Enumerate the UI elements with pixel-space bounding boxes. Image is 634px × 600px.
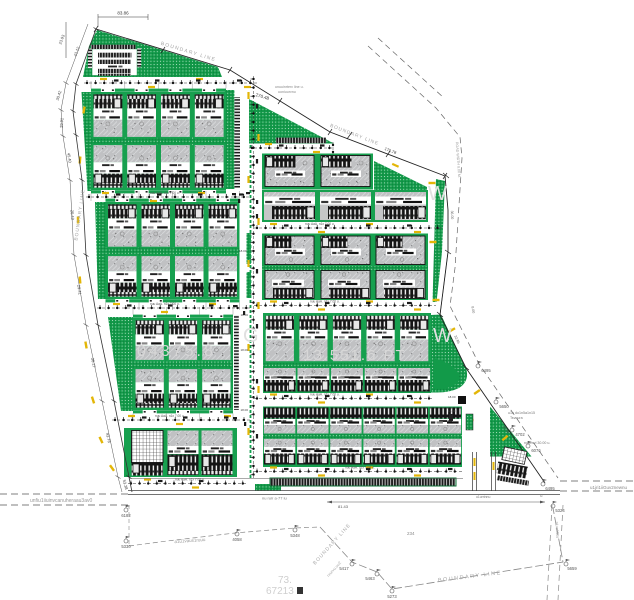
svg-text:18.00: 18.00 — [239, 249, 247, 253]
svg-text:5650: 5650 — [499, 404, 509, 409]
svg-text:6076: 6076 — [531, 448, 541, 453]
svg-text:nuuvnvi 30.00 u.: nuuvnvi 30.00 u. — [524, 441, 550, 445]
svg-text:nuu AaA. n1x 7.00 u.: nuu AaA. n1x 7.00 u. — [175, 478, 205, 482]
svg-text:04375.8: 04375.8 — [137, 343, 216, 360]
svg-text:6495: 6495 — [545, 486, 555, 491]
svg-text:nuu AaA. n1x 7.00 u.: nuu AaA. n1x 7.00 u. — [305, 222, 335, 226]
svg-text:6495: 6495 — [481, 368, 491, 373]
svg-text:36.00: 36.00 — [450, 211, 454, 220]
svg-text:unfiu1iiuinvcanuheraau3av0: unfiu1iiuinvcanuheraau3av0 — [30, 498, 92, 504]
svg-text:nuu AaA. n1x 7.00 u.: nuu AaA. n1x 7.00 u. — [310, 300, 340, 304]
svg-text:W: W — [433, 325, 452, 347]
svg-text:G: G — [243, 325, 259, 347]
svg-text:6182: 6182 — [121, 513, 131, 518]
svg-text:nu ruir a·77 iu: nu ruir a·77 iu — [262, 496, 287, 501]
svg-text:u1u do1n5a1n15: u1u do1n5a1n15 — [508, 411, 535, 415]
svg-text:Tsvnura: Tsvnura — [510, 416, 523, 420]
svg-text:u1urrinnu: u1urrinnu — [476, 495, 490, 499]
svg-text:67213: 67213 — [266, 586, 294, 597]
svg-text:5330: 5330 — [121, 544, 131, 549]
svg-text:nuu AaA. n1x 7.00 u.: nuu AaA. n1x 7.00 u. — [150, 302, 180, 306]
svg-text:13.551.6 PT: 13.551.6 PT — [303, 347, 407, 364]
svg-text:83.86: 83.86 — [117, 11, 129, 16]
svg-text:5463: 5463 — [365, 576, 375, 581]
svg-text:nuu AaA. n1x 7.00 u.: nuu AaA. n1x 7.00 u. — [150, 191, 180, 195]
svg-text:5659: 5659 — [567, 566, 577, 571]
svg-text:18.00: 18.00 — [241, 408, 249, 412]
svg-text:4702: 4702 — [515, 432, 525, 437]
svg-text:5348: 5348 — [290, 533, 300, 538]
svg-text:5273: 5273 — [387, 594, 397, 599]
svg-text:nuu AaA. n1x 7.00 u.: nuu AaA. n1x 7.00 u. — [310, 393, 340, 397]
svg-text:18.00: 18.00 — [241, 348, 249, 352]
svg-text:81.43: 81.43 — [338, 504, 349, 509]
svg-text:29.91: 29.91 — [59, 117, 65, 128]
svg-text:18.00: 18.00 — [448, 409, 456, 413]
svg-text:5324: 5324 — [555, 508, 565, 513]
svg-text:5417: 5417 — [339, 566, 349, 571]
svg-text:u1jri1iiGuv2newnu: u1jri1iiGuv2newnu — [590, 485, 628, 490]
svg-text:W: W — [428, 183, 447, 205]
svg-text:234: 234 — [407, 531, 415, 536]
svg-text:nuu AaA. n1x 7.00 u.: nuu AaA. n1x 7.00 u. — [345, 466, 375, 470]
svg-text:73.: 73. — [278, 575, 292, 586]
svg-text:nuu AaA. n1x 7.00 u.: nuu AaA. n1x 7.00 u. — [155, 414, 185, 418]
svg-text:4058: 4058 — [232, 537, 242, 542]
svg-text:18.00: 18.00 — [448, 395, 456, 399]
svg-text:unuuinrterv line u.: unuuinrterv line u. — [275, 85, 304, 89]
svg-text:uoniuurvnu: uoniuurvnu — [278, 90, 296, 94]
svg-text:25.43: 25.43 — [70, 210, 76, 221]
